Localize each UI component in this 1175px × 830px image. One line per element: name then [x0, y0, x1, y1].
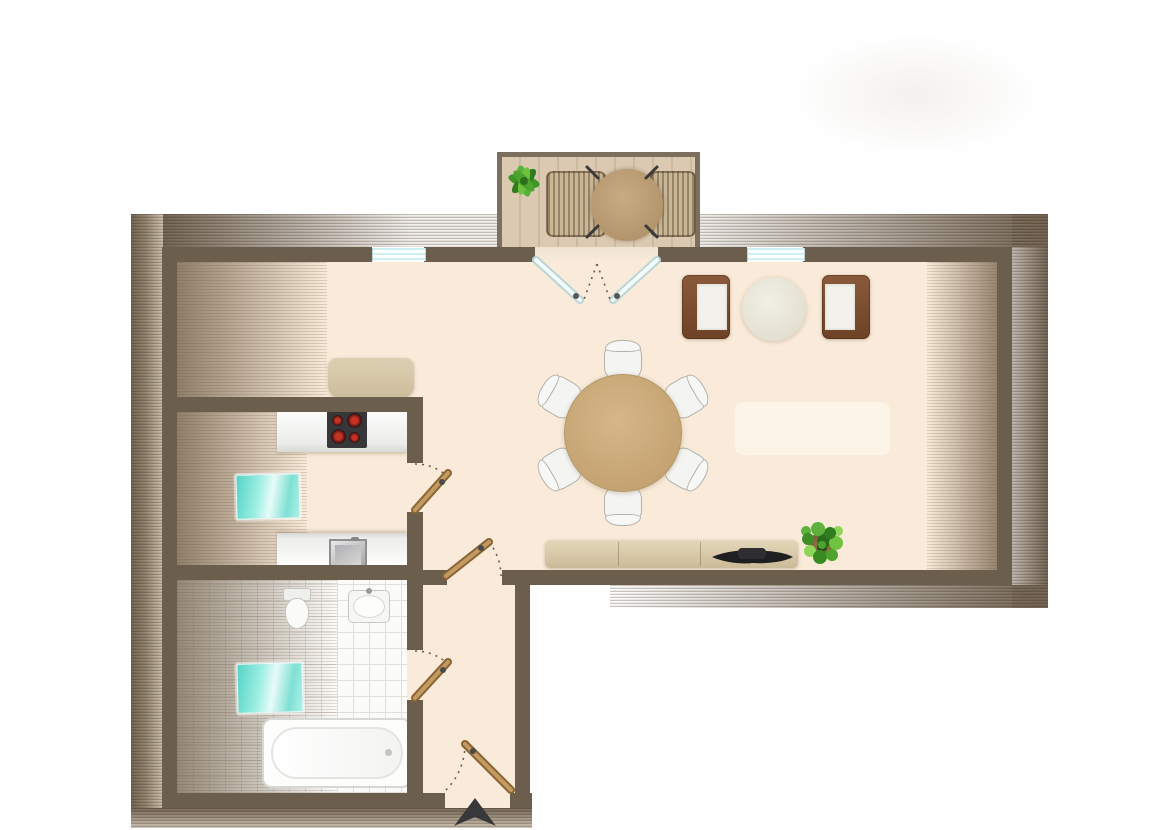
french-door-right	[613, 260, 657, 300]
french-door-left	[536, 260, 580, 300]
annotations-layer	[0, 0, 1175, 830]
balcony-table-legs	[587, 167, 657, 237]
tv-icon	[712, 548, 793, 563]
bathroom-door	[415, 651, 448, 698]
floor-plan-canvas	[0, 0, 1175, 830]
entrance-door	[446, 744, 511, 790]
french-door-swing	[583, 264, 611, 302]
hall-door	[446, 542, 501, 576]
balcony-plant-icon	[507, 164, 541, 198]
entrance-arrow-icon	[454, 798, 496, 826]
kitchen-door	[415, 464, 448, 510]
